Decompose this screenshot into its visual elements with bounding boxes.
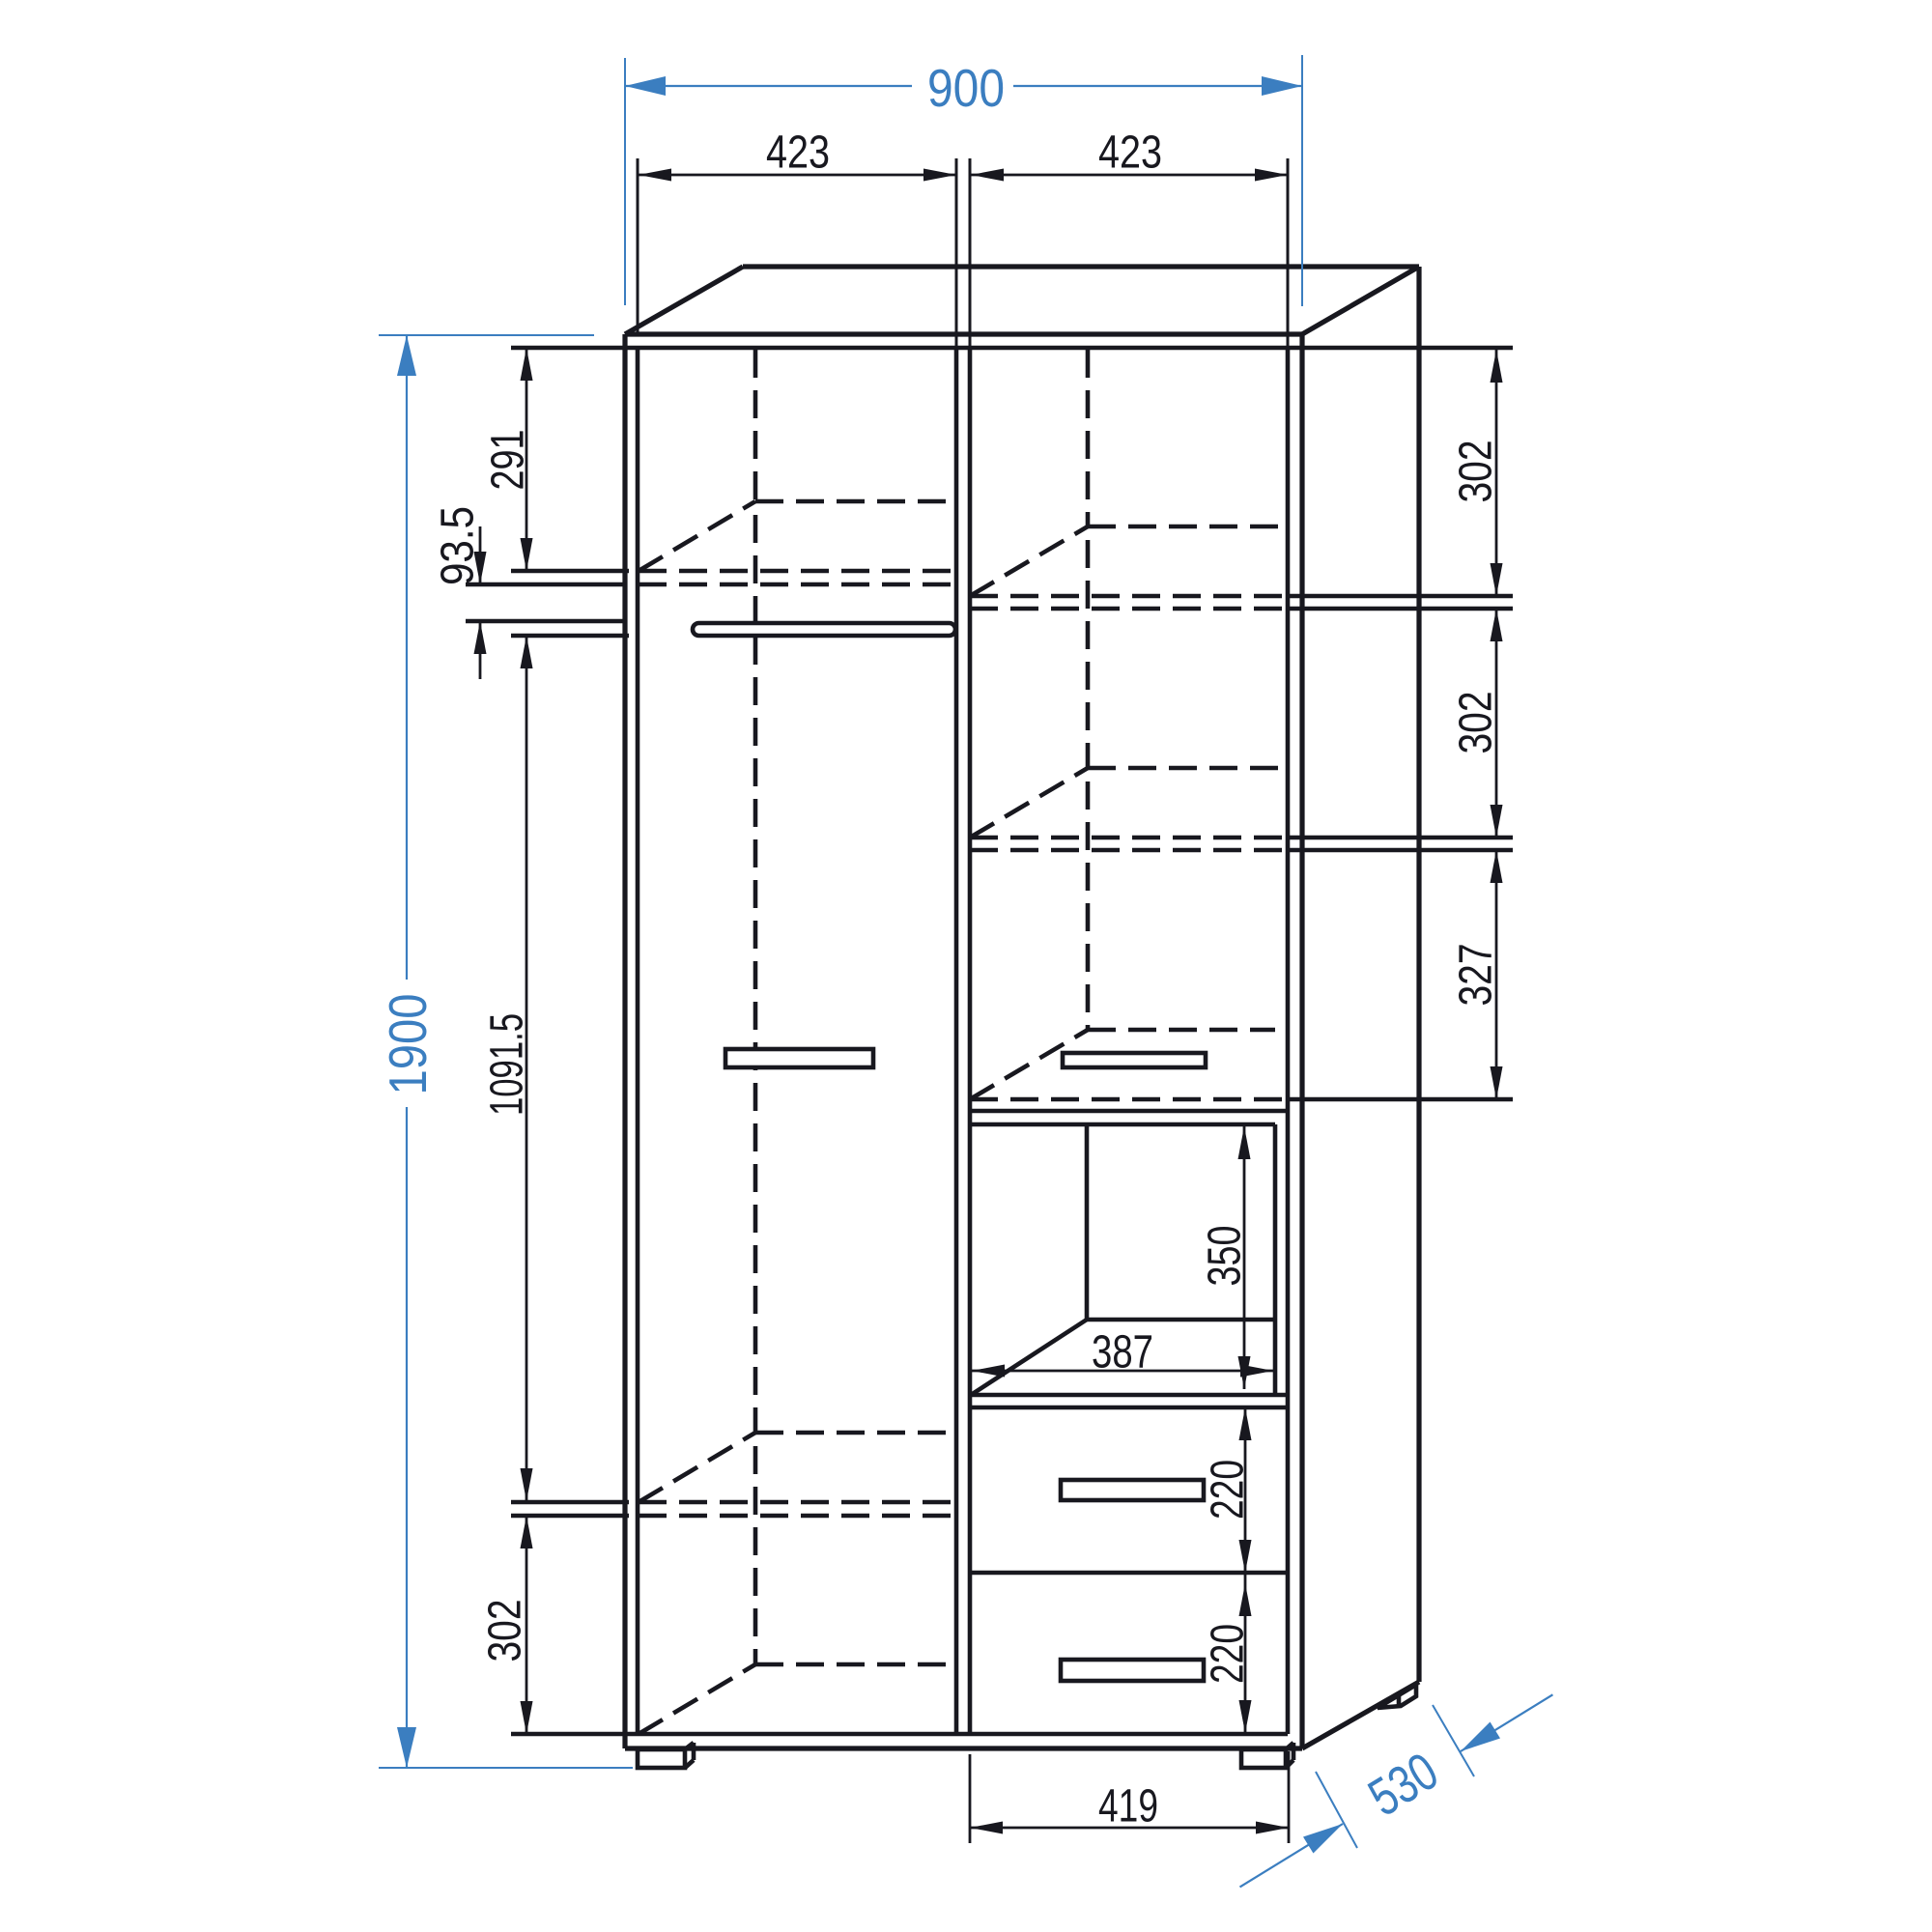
svg-text:350: 350 (1200, 1226, 1251, 1287)
svg-text:1091.5: 1091.5 (482, 1013, 533, 1116)
svg-text:387: 387 (1092, 1327, 1153, 1378)
svg-text:220: 220 (1203, 1624, 1254, 1684)
svg-text:327: 327 (1451, 944, 1502, 1007)
svg-text:302: 302 (1451, 692, 1502, 754)
svg-text:419: 419 (1098, 1781, 1158, 1833)
svg-text:93.5: 93.5 (433, 506, 484, 585)
svg-text:1900: 1900 (378, 994, 438, 1095)
svg-text:302: 302 (1451, 440, 1502, 503)
svg-text:423: 423 (766, 128, 830, 179)
svg-text:220: 220 (1203, 1460, 1254, 1520)
svg-text:302: 302 (480, 1600, 531, 1662)
svg-text:291: 291 (483, 430, 534, 491)
svg-text:423: 423 (1098, 128, 1162, 179)
svg-text:900: 900 (927, 58, 1005, 118)
